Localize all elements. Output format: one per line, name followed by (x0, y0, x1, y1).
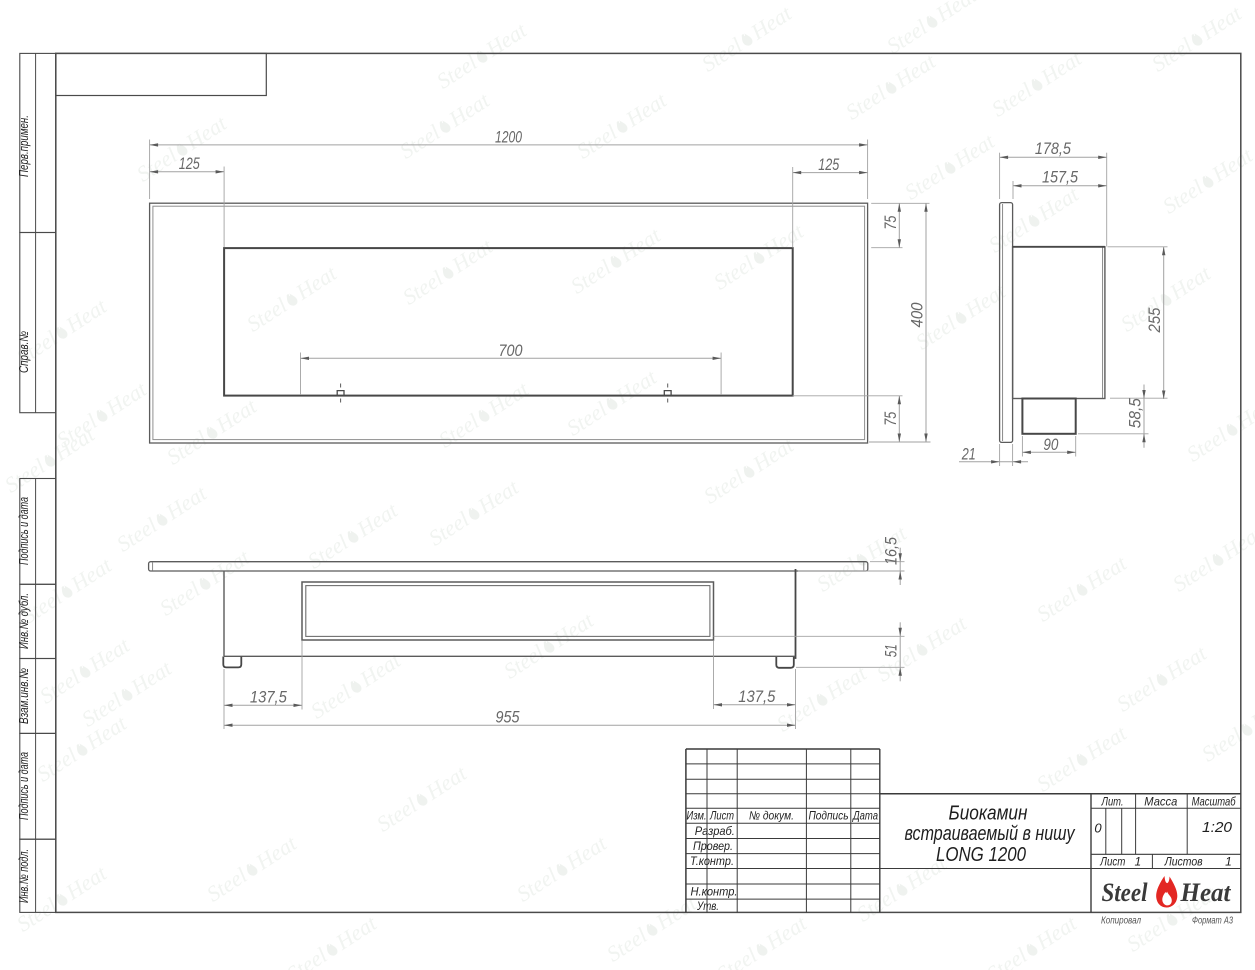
svg-text:Утв.: Утв. (696, 899, 719, 913)
svg-text:Масса: Масса (1144, 794, 1177, 808)
svg-text:75: 75 (881, 215, 900, 229)
svg-text:Подпись: Подпись (809, 809, 849, 823)
svg-text:400: 400 (908, 302, 927, 327)
svg-text:Инв.№ подл.: Инв.№ подл. (17, 849, 31, 903)
svg-text:16,5: 16,5 (882, 537, 901, 565)
svg-text:Формат А3: Формат А3 (1192, 916, 1233, 927)
svg-text:700: 700 (499, 341, 523, 360)
svg-text:Провер.: Провер. (693, 839, 733, 853)
svg-text:Дата: Дата (851, 809, 878, 823)
svg-text:Инв.№ дубл.: Инв.№ дубл. (17, 593, 31, 649)
svg-text:Heat: Heat (1180, 878, 1232, 907)
svg-text:21: 21 (961, 444, 976, 463)
svg-text:Перв.примен.: Перв.примен. (17, 115, 31, 177)
svg-text:1:20: 1:20 (1202, 819, 1233, 836)
svg-text:Лист: Лист (1099, 855, 1125, 869)
svg-text:255: 255 (1145, 307, 1164, 333)
svg-text:Взам.инв.№: Взам.инв.№ (17, 668, 31, 724)
svg-text:157,5: 157,5 (1042, 167, 1078, 186)
svg-text:0: 0 (1094, 821, 1102, 836)
svg-text:Steel: Steel (1102, 878, 1149, 907)
svg-text:Биокамин: Биокамин (949, 803, 1028, 825)
svg-text:137,5: 137,5 (738, 687, 775, 706)
svg-text:178,5: 178,5 (1035, 139, 1071, 158)
svg-text:Масштаб: Масштаб (1192, 794, 1237, 808)
svg-text:955: 955 (496, 707, 520, 726)
svg-text:Копировал: Копировал (1101, 916, 1141, 927)
svg-text:137,5: 137,5 (250, 687, 287, 706)
svg-text:№ докум.: № докум. (749, 809, 794, 823)
svg-text:1: 1 (1134, 854, 1141, 868)
svg-text:Изм.: Изм. (687, 809, 707, 823)
svg-text:Справ.№: Справ.№ (17, 331, 31, 373)
svg-text:Разраб.: Разраб. (695, 824, 735, 838)
svg-text:Подпись и дата: Подпись и дата (17, 752, 31, 820)
svg-text:125: 125 (818, 155, 839, 174)
svg-text:125: 125 (179, 154, 200, 173)
svg-text:Листов: Листов (1164, 855, 1203, 869)
svg-text:1200: 1200 (495, 127, 522, 146)
svg-text:LONG 1200: LONG 1200 (936, 844, 1026, 866)
svg-text:Лит.: Лит. (1101, 794, 1124, 808)
svg-text:58,5: 58,5 (1126, 398, 1145, 428)
svg-text:90: 90 (1043, 435, 1058, 454)
svg-text:Лист: Лист (709, 809, 734, 823)
svg-text:51: 51 (882, 644, 901, 657)
svg-text:1: 1 (1225, 854, 1232, 868)
svg-text:Т.контр.: Т.контр. (690, 854, 734, 868)
svg-text:75: 75 (881, 411, 900, 425)
svg-text:Подпись и дата: Подпись и дата (17, 497, 31, 565)
svg-text:встраиваемый в нишу: встраиваемый в нишу (905, 823, 1076, 845)
svg-text:Н.контр.: Н.контр. (691, 884, 738, 898)
